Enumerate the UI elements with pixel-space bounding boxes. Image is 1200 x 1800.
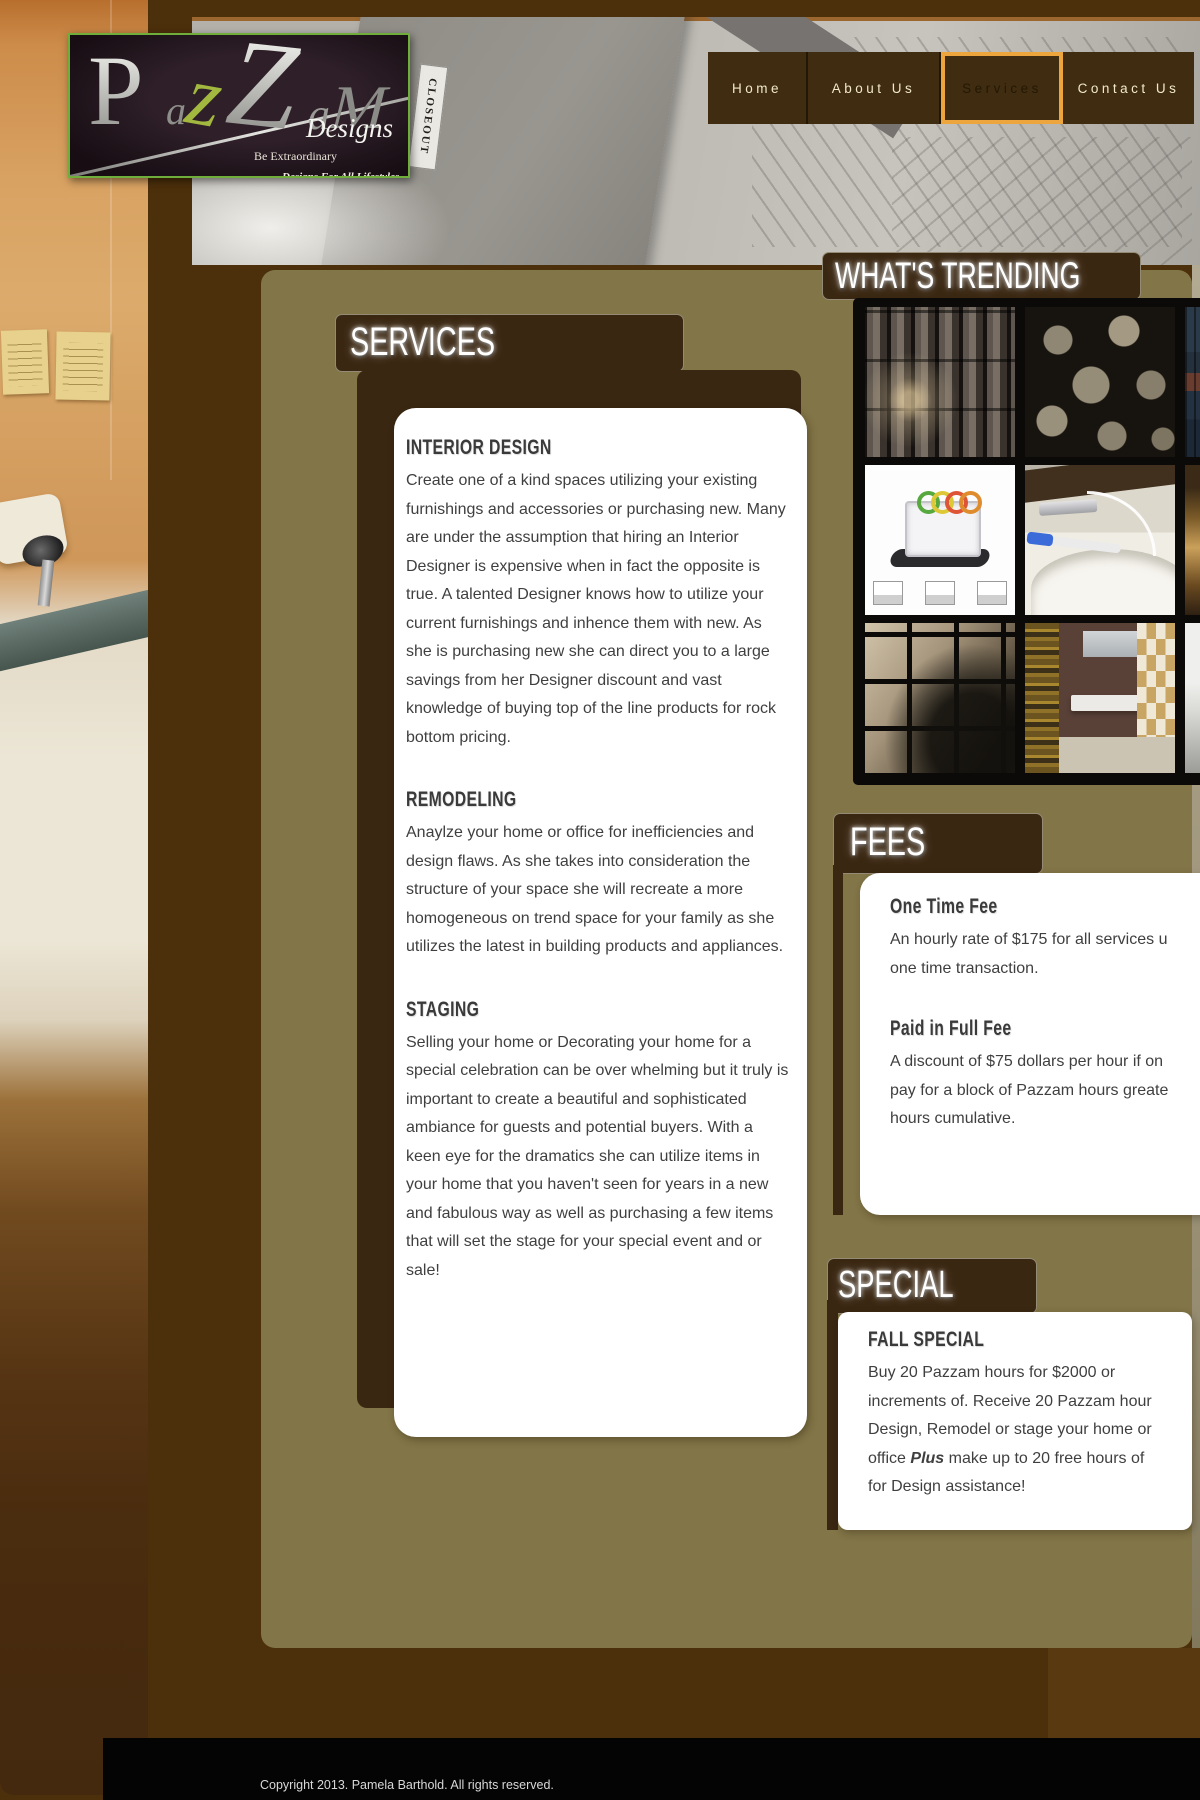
trending-thumbnail[interactable] xyxy=(1025,465,1175,615)
trending-thumbnail[interactable] xyxy=(1185,307,1200,457)
nav-item-home[interactable]: Home xyxy=(708,52,808,124)
nav-item-about-us[interactable]: About Us xyxy=(808,52,941,124)
whats-trending-banner: WHAT'S TRENDING xyxy=(822,252,1141,300)
interior-design-paragraph: Create one of a kind spaces utilizing yo… xyxy=(406,467,791,752)
trending-image-grid xyxy=(853,298,1200,785)
special-panel-edge xyxy=(827,1300,838,1530)
tub-edge-shape xyxy=(0,583,148,675)
toothbrush-head-shape xyxy=(1026,531,1053,546)
trending-thumbnail[interactable] xyxy=(1025,623,1175,773)
trending-thumbnail[interactable] xyxy=(1185,623,1200,773)
logo-designs-word: Designs xyxy=(306,113,393,144)
background-patch xyxy=(1048,1648,1200,1740)
services-panel: INTERIOR DESIGN Create one of a kind spa… xyxy=(394,408,807,1437)
special-banner-title: SPECIAL xyxy=(838,1259,954,1311)
pinned-note xyxy=(55,332,110,401)
section-heading-staging: STAGING xyxy=(406,998,791,1022)
services-banner-title: SERVICES xyxy=(350,315,495,369)
paid-in-full-paragraph: A discount of $75 dollars per hour if on… xyxy=(890,1048,1200,1134)
section-heading-text: STAGING xyxy=(406,998,479,1022)
bathroom-photo-strip xyxy=(0,0,148,1795)
services-banner: SERVICES xyxy=(335,314,684,372)
fees-panel: One Time Fee An hourly rate of $175 for … xyxy=(860,873,1200,1215)
trending-thumbnail[interactable] xyxy=(865,307,1015,457)
fall-special-heading-text: FALL SPECIAL xyxy=(868,1328,984,1352)
nav-item-contact-us[interactable]: Contact Us xyxy=(1063,52,1194,124)
diagram-thumb-shape xyxy=(977,581,1007,605)
fees-panel-edge xyxy=(833,865,843,1215)
fees-banner: FEES xyxy=(833,813,1043,874)
footer-bar: Copyright 2013. Pamela Barthold. All rig… xyxy=(103,1738,1200,1800)
klimt-art-shape xyxy=(1025,623,1059,773)
trending-thumbnail[interactable] xyxy=(865,623,1015,773)
floor-shape xyxy=(1059,737,1175,773)
main-nav: Home About Us Services Contact Us xyxy=(708,52,1194,124)
fees-banner-title: FEES xyxy=(850,814,925,871)
pinned-note xyxy=(1,329,49,395)
section-heading-interior-design: INTERIOR DESIGN xyxy=(406,436,791,460)
fee-heading-text: Paid in Full Fee xyxy=(890,1017,1012,1041)
page-root: CLOSEOUT P a z Z a M Designs Be Extraord… xyxy=(0,0,1200,1800)
nav-item-services-active[interactable]: Services xyxy=(941,52,1063,124)
fee-heading-one-time: One Time Fee xyxy=(890,895,1200,919)
logo-letter: Z xyxy=(222,33,304,150)
fee-heading-paid-in-full: Paid in Full Fee xyxy=(890,1017,1200,1041)
staging-paragraph: Selling your home or Decorating your hom… xyxy=(406,1029,791,1286)
special-panel: FALL SPECIAL Buy 20 Pazzam hours for $20… xyxy=(838,1312,1192,1530)
fee-heading-text: One Time Fee xyxy=(890,895,998,919)
checker-tiles-shape xyxy=(1137,623,1175,737)
logo-tagline-2: Designs For All Lifestyles xyxy=(282,171,399,178)
logo-letter: P xyxy=(88,41,144,141)
closeout-tag-text: CLOSEOUT xyxy=(417,78,438,156)
pazzam-logo[interactable]: P a z Z a M Designs Be Extraordinary Des… xyxy=(68,33,410,178)
pepper-ring-shape xyxy=(959,491,982,514)
trending-thumbnail[interactable] xyxy=(1025,307,1175,457)
whats-trending-title: WHAT'S TRENDING xyxy=(835,253,1080,298)
fall-special-plus: Plus xyxy=(910,1450,944,1467)
copyright-text: Copyright 2013. Pamela Barthold. All rig… xyxy=(260,1778,554,1792)
logo-letter: z xyxy=(181,51,229,142)
remodeling-paragraph: Anaylze your home or office for ineffici… xyxy=(406,819,791,962)
section-heading-text: INTERIOR DESIGN xyxy=(406,436,552,460)
diagram-thumb-shape xyxy=(873,581,903,605)
fall-special-heading: FALL SPECIAL xyxy=(868,1328,1192,1352)
special-banner: SPECIAL xyxy=(827,1258,1037,1314)
diagram-thumb-shape xyxy=(925,581,955,605)
trending-thumbnail[interactable] xyxy=(865,465,1015,615)
one-time-fee-paragraph: An hourly rate of $175 for all services … xyxy=(890,926,1200,983)
trending-thumbnail[interactable] xyxy=(1185,465,1200,615)
section-heading-text: REMODELING xyxy=(406,788,517,812)
fall-special-paragraph: Buy 20 Pazzam hours for $2000 or increme… xyxy=(868,1359,1192,1502)
basin-shape xyxy=(1031,549,1175,615)
logo-tagline-1: Be Extraordinary xyxy=(254,149,337,164)
section-heading-remodeling: REMODELING xyxy=(406,788,791,812)
